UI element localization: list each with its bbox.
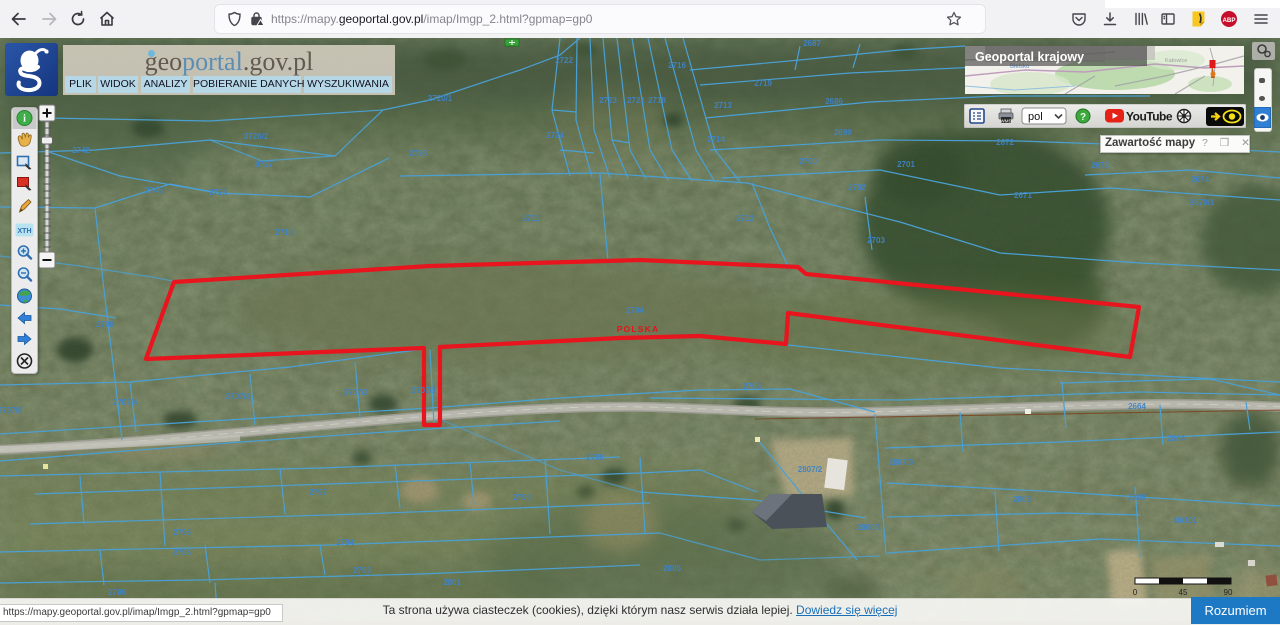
svg-text:2671: 2671 xyxy=(1014,191,1032,200)
svg-text:POLSKA: POLSKA xyxy=(617,324,660,334)
svg-text:2711: 2711 xyxy=(522,214,540,223)
svg-text:48/101: 48/101 xyxy=(1173,516,1198,525)
svg-text:3726/2: 3726/2 xyxy=(244,132,269,141)
svg-text:2797: 2797 xyxy=(309,488,327,497)
svg-text:2723: 2723 xyxy=(599,96,617,105)
svg-text:2674: 2674 xyxy=(1191,175,1209,184)
svg-text:2807/3: 2807/3 xyxy=(889,458,914,467)
svg-text:2804: 2804 xyxy=(1167,434,1185,443)
svg-text:2809: 2809 xyxy=(1128,493,1146,502)
svg-text:2707/2: 2707/2 xyxy=(344,388,369,397)
svg-text:2807/2: 2807/2 xyxy=(798,465,823,474)
svg-text:2710: 2710 xyxy=(275,228,293,237)
svg-text:45: 45 xyxy=(1179,588,1188,597)
svg-text:2704: 2704 xyxy=(626,306,644,315)
svg-text:ABP: ABP xyxy=(1222,17,1235,24)
svg-text:2701: 2701 xyxy=(897,160,915,169)
svg-text:0: 0 xyxy=(1133,588,1138,597)
svg-text:2794: 2794 xyxy=(336,538,354,547)
svg-text:2707/4: 2707/4 xyxy=(113,398,138,407)
svg-text:2796: 2796 xyxy=(173,528,191,537)
svg-text:9727: 9727 xyxy=(255,160,273,169)
svg-text:2722: 2722 xyxy=(555,56,573,65)
svg-text:2790: 2790 xyxy=(513,493,531,502)
svg-text:WMS: WMS xyxy=(1001,119,1012,124)
svg-text:2699: 2699 xyxy=(834,128,852,137)
svg-text:Geoportal krajowy: Geoportal krajowy xyxy=(975,50,1084,64)
svg-text:2798: 2798 xyxy=(586,453,604,462)
svg-text:2719: 2719 xyxy=(754,79,772,88)
svg-text:XTH: XTH xyxy=(18,228,32,235)
svg-text:2805: 2805 xyxy=(663,564,681,573)
svg-text:2795: 2795 xyxy=(173,548,191,557)
svg-text:2721: 2721 xyxy=(627,96,645,105)
svg-text:2712: 2712 xyxy=(736,214,754,223)
svg-text:2706: 2706 xyxy=(743,382,761,391)
svg-text:2793: 2793 xyxy=(353,566,371,575)
svg-text:2745: 2745 xyxy=(145,186,163,195)
svg-text:2702: 2702 xyxy=(848,183,866,192)
svg-text:2707/3: 2707/3 xyxy=(226,392,251,401)
svg-text:2673: 2673 xyxy=(1091,161,1109,170)
svg-text:2664: 2664 xyxy=(1128,402,1146,411)
svg-text:2686: 2686 xyxy=(825,97,843,106)
svg-text:2718: 2718 xyxy=(648,96,666,105)
svg-text:2700: 2700 xyxy=(799,157,817,166)
svg-text:2786: 2786 xyxy=(108,588,126,597)
svg-text:2742: 2742 xyxy=(72,146,90,155)
svg-text:2716: 2716 xyxy=(668,61,686,70)
svg-text:2687: 2687 xyxy=(803,39,821,48)
svg-text:2672: 2672 xyxy=(996,138,1014,147)
svg-text:2720/1: 2720/1 xyxy=(428,94,453,103)
svg-text:90: 90 xyxy=(1224,588,1233,597)
svg-text:2726: 2726 xyxy=(409,149,427,158)
svg-text:2708: 2708 xyxy=(96,320,114,329)
svg-text:2703: 2703 xyxy=(867,236,885,245)
svg-text:2724: 2724 xyxy=(546,131,564,140)
svg-text:Katowice: Katowice xyxy=(1165,58,1187,64)
svg-text:2670/1: 2670/1 xyxy=(1190,198,1215,207)
svg-text:2725: 2725 xyxy=(209,188,227,197)
svg-text:2808: 2808 xyxy=(1013,495,1031,504)
svg-text:2801: 2801 xyxy=(443,578,461,587)
svg-text:2714: 2714 xyxy=(707,135,725,144)
svg-text:2707/5: 2707/5 xyxy=(0,406,23,415)
svg-text:2707/1: 2707/1 xyxy=(412,386,437,395)
svg-text:pol: pol xyxy=(1028,111,1043,123)
svg-text:2713: 2713 xyxy=(714,101,732,110)
svg-text:i: i xyxy=(23,114,26,125)
svg-text:?: ? xyxy=(1080,112,1086,123)
svg-text:YouTube: YouTube xyxy=(1126,110,1173,124)
svg-text:2806/1: 2806/1 xyxy=(857,523,882,532)
